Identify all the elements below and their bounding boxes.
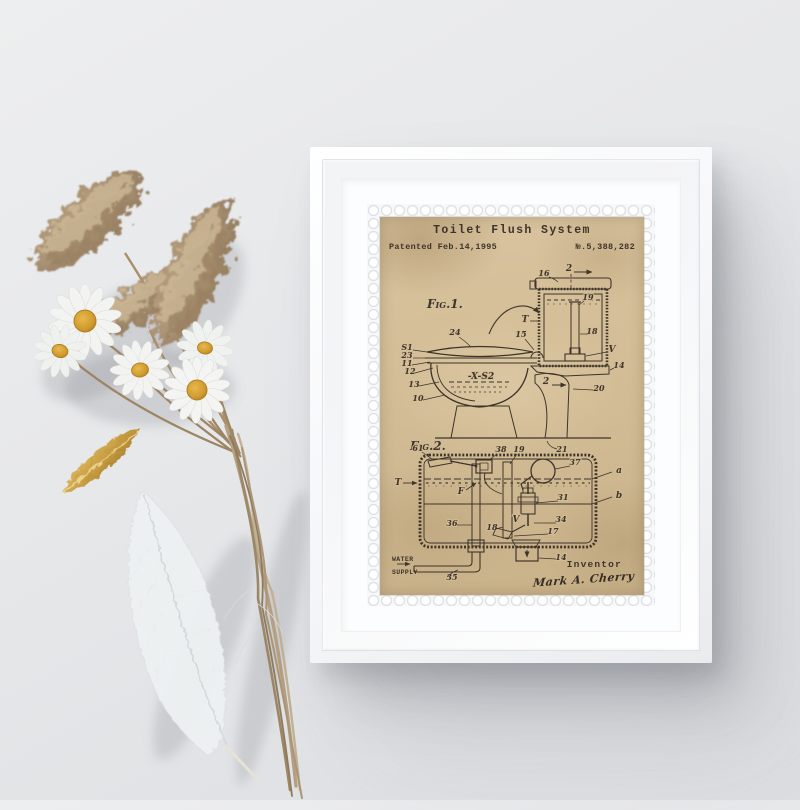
supply-pipe-outer — [414, 552, 480, 572]
flow-arrow — [489, 306, 539, 334]
patent-print: Toilet Flush System Patented Feb.14,1995… — [380, 217, 644, 595]
leader-24 — [459, 337, 471, 347]
water-supply-word2: SUPPLY — [392, 569, 418, 576]
trip-lever-box — [476, 460, 492, 473]
inventor-label: Inventor — [567, 559, 622, 570]
fig2-label-T: T — [395, 478, 403, 488]
fig1-label-13: 13 — [408, 379, 420, 389]
fig2-label-F: F — [457, 487, 465, 497]
overflow-tube2 — [503, 462, 512, 538]
patent-number: №.5,388,282 — [576, 242, 635, 252]
fig1-label-19: 19 — [582, 292, 594, 302]
fig1-label-10: 10 — [412, 393, 424, 403]
frame-molding: Toilet Flush System Patented Feb.14,1995… — [322, 159, 700, 651]
supply-tube — [472, 464, 480, 546]
valve-body — [521, 493, 535, 514]
leader-31 — [536, 501, 558, 503]
leader-12 — [415, 368, 433, 373]
fig2-label-18: 18 — [486, 522, 498, 532]
pampas-plume-left — [19, 155, 158, 287]
leader-V — [586, 352, 607, 356]
fig1-caption: Fig.1. — [426, 297, 463, 311]
fig1-label-14: 14 — [613, 360, 625, 370]
bowl-rim — [425, 358, 537, 363]
fig2-label-37: 37 — [569, 457, 581, 467]
wall-background: Toilet Flush System Patented Feb.14,1995… — [0, 0, 800, 800]
leader-10 — [423, 395, 445, 400]
fig1-label-12: 12 — [404, 366, 416, 376]
leader-S1 — [413, 350, 427, 352]
fig2-label-a: a — [616, 466, 622, 476]
fig1-label-20: 20 — [592, 383, 605, 393]
fig1-label-16: 16 — [538, 268, 550, 278]
tank-lid — [535, 278, 611, 289]
picture-frame: Toilet Flush System Patented Feb.14,1995… — [310, 147, 712, 663]
fig1-label-18: 18 — [586, 326, 598, 336]
fig2-label-38: 38 — [495, 444, 507, 454]
leader-20 — [573, 389, 593, 390]
bowl-outline — [431, 363, 528, 407]
tank-outline — [420, 455, 596, 547]
toilet-seat — [427, 347, 533, 357]
gold-feather — [56, 421, 148, 500]
beaded-border: Toilet Flush System Patented Feb.14,1995… — [367, 204, 655, 606]
lever-pivot — [475, 465, 478, 468]
leader-15 — [525, 339, 534, 350]
patent-date: Patented Feb.14,1995 — [389, 242, 497, 252]
flapper-arm — [512, 525, 525, 532]
fig1-label-XS2: -X-S2 — [468, 372, 494, 382]
fig2-label-17: 17 — [547, 526, 559, 536]
figure-1-toilet-diagram: Fig.1. — [397, 262, 631, 454]
leader-14b — [539, 558, 556, 559]
fig2-label-35: 35 — [446, 572, 458, 582]
trapway-section — [535, 373, 569, 438]
leader-17 — [514, 534, 548, 536]
fig1-label-2-top: 2 — [565, 264, 572, 274]
fig1-label-T: T — [522, 315, 530, 325]
fig1-label-2-side: 2 — [542, 377, 549, 387]
hinge-dome — [531, 352, 543, 358]
fig2-label-19: 19 — [513, 444, 525, 454]
fig2-label-b: b — [616, 491, 622, 501]
trip-lever-inner — [480, 463, 488, 470]
print-title: Toilet Flush System — [380, 224, 644, 237]
deck-section — [531, 366, 609, 376]
flush-valve-body — [565, 354, 585, 361]
fig2-label-61: 61 — [412, 443, 423, 453]
fig1-label-V: V — [609, 345, 617, 355]
fig2-label-36: 36 — [446, 518, 458, 528]
supply-pipe-inner — [414, 552, 472, 566]
fig2-label-V: V — [513, 515, 521, 525]
pedestal-section — [451, 406, 517, 438]
dried-flower-arrangement — [0, 118, 322, 810]
leader-a — [592, 472, 612, 479]
fig2-label-31: 31 — [557, 492, 568, 502]
patent-header-row: Patented Feb.14,1995 №.5,388,282 — [389, 242, 635, 252]
overflow-tube — [571, 302, 579, 354]
frame-mat: Toilet Flush System Patented Feb.14,1995… — [341, 178, 681, 632]
fig2-label-34: 34 — [555, 514, 567, 524]
fig1-label-15: 15 — [515, 329, 527, 339]
fig2-label-14: 14 — [555, 552, 567, 562]
leader-37 — [555, 466, 570, 469]
water-supply-word1: WATER — [392, 556, 414, 563]
fig1-label-24: 24 — [448, 327, 461, 337]
